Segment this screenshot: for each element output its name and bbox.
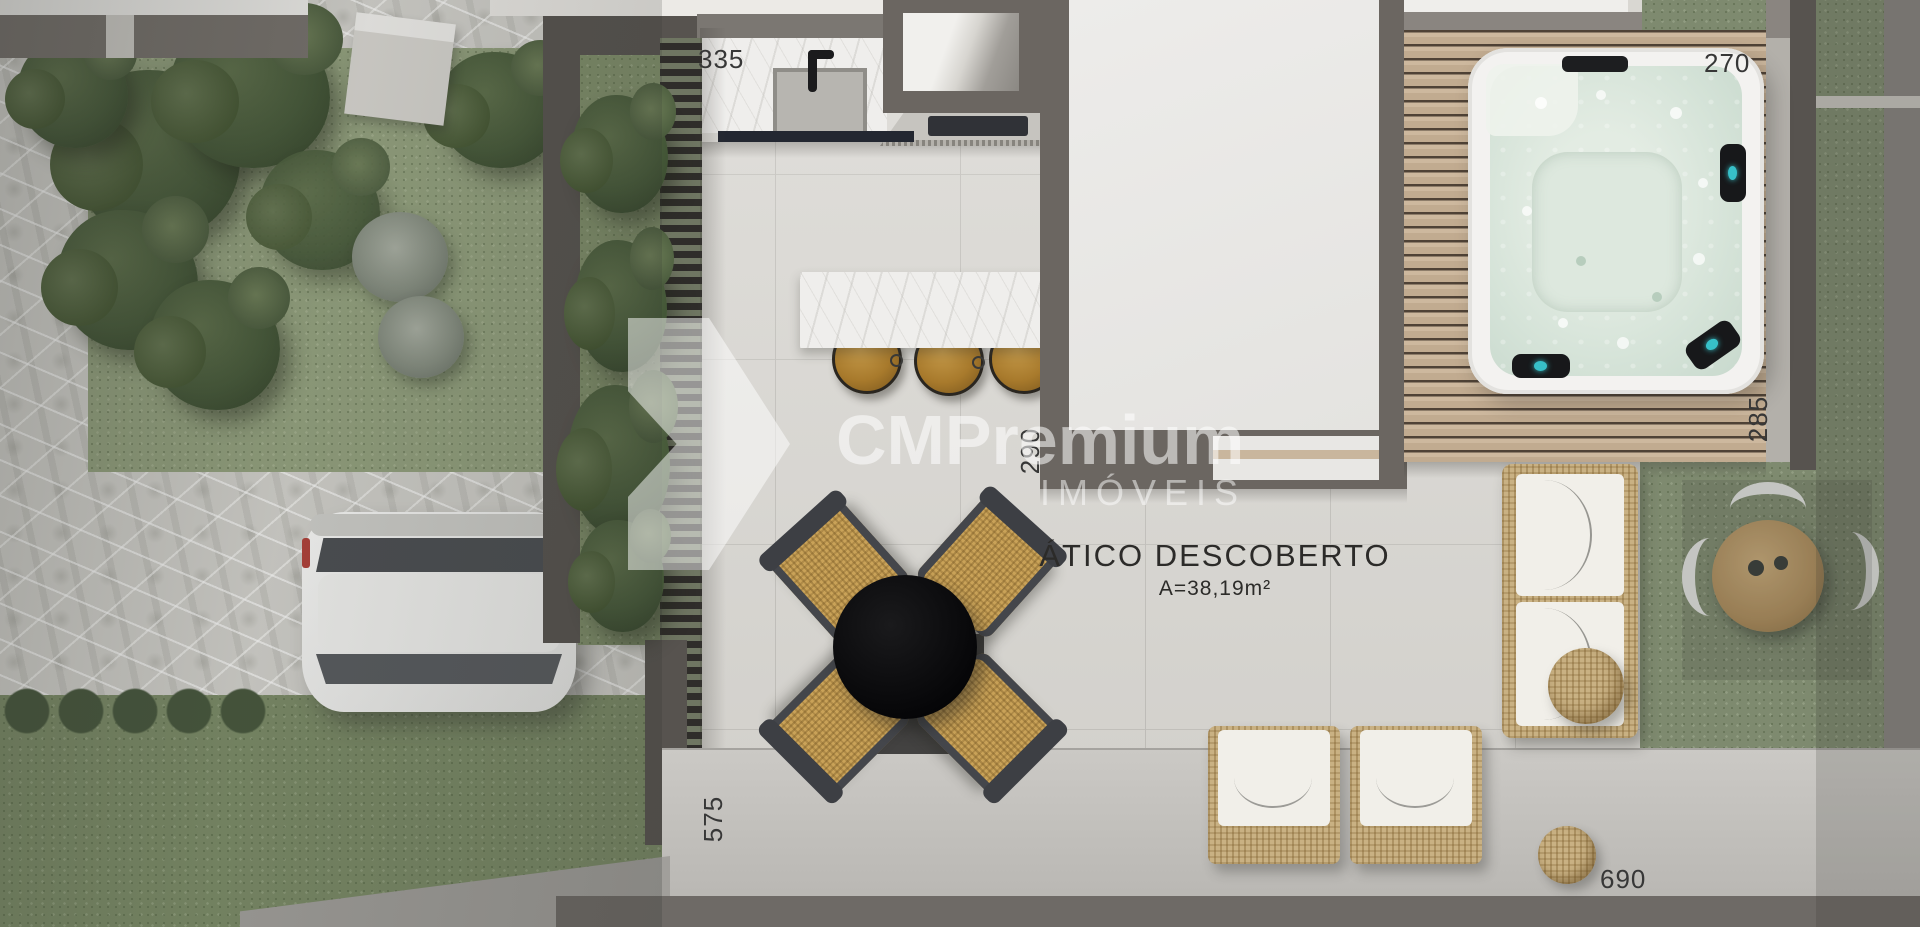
ottoman-pouf [1548,648,1624,724]
car-rear-window [316,538,562,572]
cushion-seam [1544,480,1592,590]
right-path-band [1800,96,1920,108]
tree [150,280,280,410]
room-area: A=38,19m² [1015,577,1415,601]
cushion-seam [1376,748,1454,808]
shade-overlay [1682,480,1872,680]
jet-light [1728,166,1737,180]
hot-tub-vent [1562,56,1628,72]
roof-edge [490,0,697,16]
angled-roof-piece [344,12,456,125]
car-windshield [316,654,562,684]
top-wall [0,15,308,58]
hot-tub-jets [1468,48,1474,54]
outdoor-dining-set [1682,480,1872,680]
car-rear-bumper [310,514,568,536]
dining-table [833,575,977,719]
hedge-row [0,686,270,738]
roof-box-wall-left [1040,0,1069,489]
roof-box [1067,0,1382,432]
kitchen-roof-edge [697,0,893,14]
hot-tub [1468,48,1764,394]
cooktop [928,116,1028,136]
jet-light [1704,337,1720,353]
planter-tree [578,520,664,632]
roof-inset-panel [1213,436,1379,480]
dimension-label-terrace-depth: 575 [698,789,724,849]
armchair [1350,726,1482,864]
gray-shrub [378,296,464,378]
kitchen-sink [773,68,867,136]
faucet-spout [808,50,834,59]
car-roof [318,574,560,652]
counter-front-edge [718,131,914,142]
planter-tree [572,95,668,213]
wall-gap [106,15,134,58]
deck-corner-wall [1766,0,1792,40]
slab-dark-edge [556,896,1920,927]
hot-tub-headrest [1720,144,1746,202]
hot-tub-seat-pad [1532,152,1682,312]
cushion-seam [1234,748,1312,808]
dimension-label-terrace-width: 690 [1600,864,1680,892]
car [302,512,576,712]
neighbor-roof-edge [0,0,308,15]
wall-shadow [1040,489,1407,503]
inset-wood-trim [1213,450,1379,459]
dimension-label-hot-tub-width: 270 [1704,48,1774,76]
dimension-label-kitchen-width: 335 [698,44,768,72]
dimension-label-kitchen-depth: 290 [1015,421,1041,481]
stair-opening [903,13,1019,91]
armchair-cushion [1218,730,1330,826]
sofa-cushion [1516,474,1624,596]
bar-island-counter [800,272,1046,348]
tree [438,52,560,168]
armchair-cushion [1360,730,1472,826]
kitchen-back-wall [697,14,893,40]
room-title: ÁTICO DESCOBERTO [1015,538,1415,574]
dimension-label-deck-depth: 285 [1743,389,1769,449]
car-taillight-left [302,538,310,568]
roof-box-wall-right [1379,0,1404,489]
right-dark-wall [1790,0,1816,470]
side-pouf [1538,826,1596,884]
gray-shrub [352,212,448,302]
wall-shadow-left [700,28,726,748]
planter-tree [575,240,667,372]
hot-tub-headrest [1512,354,1570,378]
floor-plan-canvas: 335 270 290 285 575 690 ÁTICO DESCOBERTO… [0,0,1920,927]
jet-light [1534,361,1547,371]
armchair [1208,726,1340,864]
hot-tub-lounger [1486,64,1578,136]
